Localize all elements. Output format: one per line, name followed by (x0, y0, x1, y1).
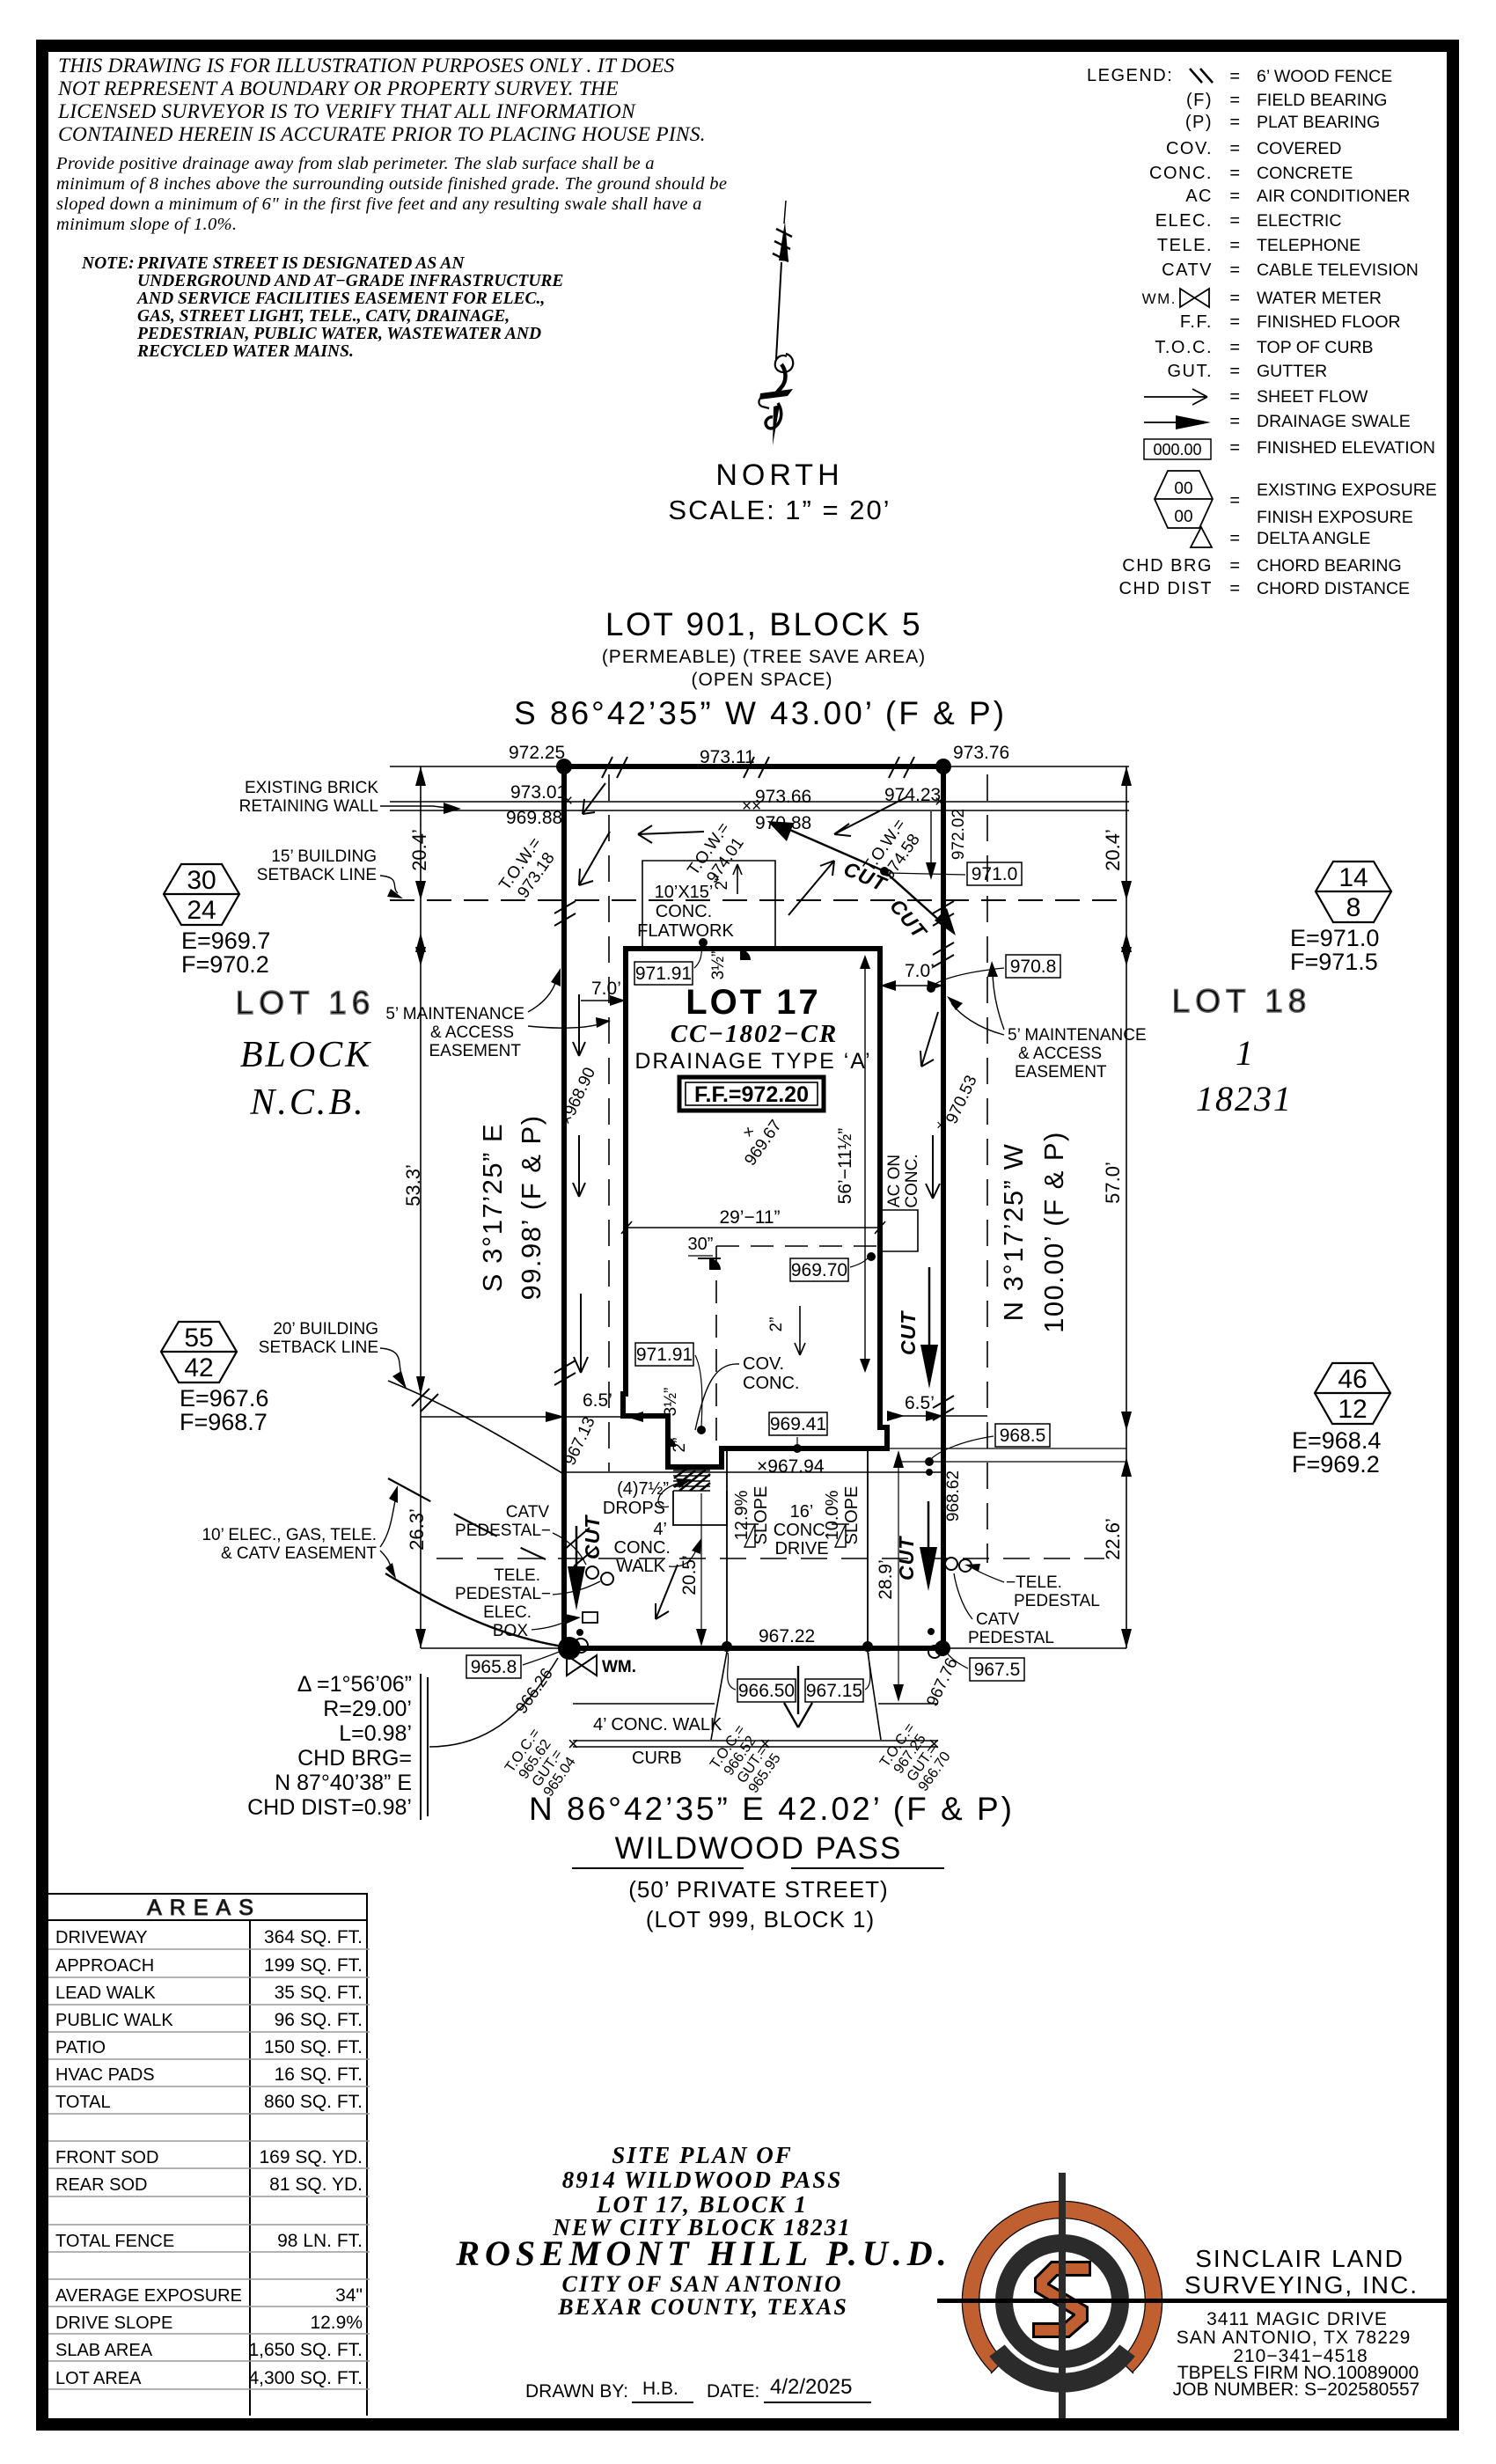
svg-text:=: = (1229, 338, 1241, 357)
svg-text:WM.: WM. (602, 1658, 636, 1676)
svg-text:F.F.: F.F. (1180, 312, 1213, 332)
svg-text:REAR SOD: REAR SOD (55, 2175, 147, 2195)
svg-text:E=968.4: E=968.4 (1292, 1427, 1381, 1454)
svg-text:ELEC.: ELEC. (1155, 211, 1213, 231)
svg-text:=: = (1229, 312, 1241, 332)
svg-text:S 3°17’25” E: S 3°17’25” E (477, 1123, 508, 1292)
svg-text:DRAWN BY:: DRAWN BY: (525, 2381, 628, 2402)
svg-text:HVAC PADS: HVAC PADS (55, 2065, 155, 2085)
svg-text:sloped down a minimum of 6" in: sloped down a minimum of 6" in the first… (56, 194, 702, 214)
svg-text:20.4’: 20.4’ (1102, 829, 1124, 871)
svg-text:TELE.: TELE. (1157, 236, 1213, 255)
svg-text:××: ×× (742, 797, 761, 816)
svg-text:CHD DIST=0.98’: CHD DIST=0.98’ (247, 1795, 412, 1820)
svg-text:20.5’: 20.5’ (679, 1555, 700, 1595)
svg-text:=: = (1229, 412, 1241, 431)
svg-text:969.70: 969.70 (791, 1260, 847, 1280)
svg-text:PUBLIC WALK: PUBLIC WALK (55, 2011, 173, 2030)
svg-text:CONC.: CONC. (656, 902, 712, 921)
svg-text:=: = (1229, 529, 1241, 548)
svg-text:PEDESTAL−: PEDESTAL− (455, 1522, 551, 1540)
svg-text:14: 14 (1338, 863, 1368, 892)
svg-text:12.9%: 12.9% (732, 1490, 752, 1540)
svg-text:NORTH: NORTH (715, 458, 843, 492)
svg-text:T.O.C.: T.O.C. (1155, 338, 1213, 357)
svg-text:973.76: 973.76 (953, 743, 1009, 763)
svg-text:APPROACH: APPROACH (55, 1956, 154, 1976)
svg-text:969.67: 969.67 (741, 1117, 786, 1170)
svg-text:E=969.7: E=969.7 (181, 928, 270, 954)
svg-text:(50’ PRIVATE STREET): (50’ PRIVATE STREET) (628, 1876, 888, 1903)
svg-text:F=968.7: F=968.7 (180, 1409, 268, 1435)
svg-text:968.5: 968.5 (1000, 1426, 1046, 1446)
svg-text:GUTTER: GUTTER (1257, 362, 1327, 381)
svg-text:COV.: COV. (1166, 139, 1213, 158)
svg-text:& CATV EASEMENT: & CATV EASEMENT (221, 1544, 377, 1563)
svg-text:5’ MAINTENANCE: 5’ MAINTENANCE (1008, 1026, 1147, 1045)
svg-text:PRIVATE STREET IS DESIGNATED A: PRIVATE STREET IS DESIGNATED AS AN (136, 254, 465, 273)
svg-text:=: = (1229, 113, 1241, 132)
svg-text:FINISHED ELEVATION: FINISHED ELEVATION (1257, 438, 1435, 458)
svg-text:CONTAINED HEREIN IS ACCURATE P: CONTAINED HEREIN IS ACCURATE PRIOR TO PL… (58, 123, 706, 146)
svg-text:973.66: 973.66 (755, 787, 811, 807)
svg-text:973.01: 973.01 (510, 782, 567, 803)
svg-text:JOB NUMBER: S−202580557: JOB NUMBER: S−202580557 (1173, 2380, 1420, 2400)
svg-text:=: = (1229, 187, 1241, 206)
svg-text:16’: 16’ (790, 1502, 814, 1522)
svg-text:30”: 30” (688, 1235, 714, 1254)
svg-text:SETBACK LINE: SETBACK LINE (257, 866, 377, 884)
svg-text:46: 46 (1338, 1365, 1367, 1394)
svg-text:169 SQ. YD.: 169 SQ. YD. (259, 2147, 363, 2167)
svg-text:16 SQ. FT.: 16 SQ. FT. (275, 2064, 363, 2085)
svg-text:=: = (1229, 387, 1241, 407)
svg-text:5’ MAINTENANCE: 5’ MAINTENANCE (385, 1005, 524, 1023)
svg-text:967.15: 967.15 (806, 1681, 862, 1701)
svg-text:3411 MAGIC DRIVE: 3411 MAGIC DRIVE (1206, 2309, 1388, 2329)
svg-text:971.91: 971.91 (636, 1345, 693, 1365)
svg-text:FRONT SOD: FRONT SOD (55, 2148, 158, 2167)
svg-text:CHORD BEARING: CHORD BEARING (1257, 556, 1402, 576)
svg-text:57.0’: 57.0’ (1102, 1162, 1124, 1204)
svg-text:ELECTRIC: ELECTRIC (1257, 211, 1341, 231)
svg-text:(F): (F) (1186, 91, 1213, 110)
svg-text:965.8: 965.8 (471, 1657, 517, 1677)
svg-text:EXISTING BRICK: EXISTING BRICK (245, 779, 378, 797)
svg-text:PATIO: PATIO (55, 2038, 106, 2057)
svg-text:4/2/2025: 4/2/2025 (770, 2375, 852, 2399)
svg-text:CURB: CURB (632, 1749, 682, 1768)
svg-text:10.0%: 10.0% (823, 1490, 842, 1540)
svg-text:967.22: 967.22 (759, 1626, 815, 1646)
svg-text:=: = (1229, 91, 1241, 110)
svg-text:2”: 2” (671, 1438, 689, 1453)
svg-text:×967.94: ×967.94 (757, 1456, 825, 1477)
svg-text:967.76: 967.76 (923, 1655, 962, 1710)
svg-text:DELTA ANGLE: DELTA ANGLE (1257, 529, 1370, 548)
svg-text:971.0: 971.0 (972, 864, 1018, 884)
svg-text:WATER METER: WATER METER (1257, 289, 1382, 308)
svg-text:=: = (1229, 491, 1241, 510)
svg-text:GAS, STREET LIGHT, TELE., CATV: GAS, STREET LIGHT, TELE., CATV, DRAINAGE… (137, 307, 510, 326)
svg-text:=: = (1229, 579, 1241, 598)
svg-text:N 87°40’38” E: N 87°40’38” E (275, 1771, 412, 1795)
svg-text:EXISTING EXPOSURE: EXISTING EXPOSURE (1257, 480, 1437, 500)
svg-text:6.5’: 6.5’ (905, 1393, 935, 1413)
svg-text:E=967.6: E=967.6 (180, 1385, 268, 1412)
svg-text:971.91: 971.91 (635, 964, 692, 984)
svg-text:CUT: CUT (581, 1514, 604, 1559)
svg-text:FINISH EXPOSURE: FINISH EXPOSURE (1257, 508, 1413, 527)
svg-text:967.5: 967.5 (974, 1660, 1021, 1680)
svg-text:SITE PLAN OF: SITE PLAN OF (612, 2142, 793, 2168)
svg-text:TOTAL: TOTAL (55, 2093, 111, 2112)
svg-text:& ACCESS: & ACCESS (430, 1023, 514, 1042)
svg-text:FIELD BEARING: FIELD BEARING (1257, 91, 1387, 110)
svg-text:=: = (1229, 236, 1241, 255)
svg-text:8914 WILDWOOD PASS: 8914 WILDWOOD PASS (562, 2167, 843, 2193)
svg-text:8: 8 (1346, 893, 1361, 922)
svg-text:SLAB AREA: SLAB AREA (55, 2341, 153, 2360)
svg-text:CATV: CATV (506, 1503, 550, 1522)
svg-text:CUT: CUT (885, 895, 932, 944)
svg-text:WILDWOOD PASS: WILDWOOD PASS (615, 1831, 903, 1866)
svg-text:SINCLAIR LAND: SINCLAIR LAND (1195, 2245, 1404, 2272)
svg-text:18231: 18231 (1196, 1079, 1293, 1118)
svg-text:F.F.=972.20: F.F.=972.20 (694, 1082, 809, 1107)
svg-text:E=971.0: E=971.0 (1290, 925, 1379, 951)
svg-text:4,300 SQ. FT.: 4,300 SQ. FT. (248, 2368, 363, 2388)
svg-text:SCALE: 1” = 20’: SCALE: 1” = 20’ (668, 495, 891, 525)
svg-text:F=971.5: F=971.5 (1290, 949, 1378, 975)
svg-text:=: = (1229, 164, 1241, 183)
svg-text:×: × (935, 793, 944, 811)
svg-text:DRIVE: DRIVE (774, 1539, 828, 1558)
svg-text:S 86°42’35” W 43.00’ (F & P): S 86°42’35” W 43.00’ (F & P) (514, 695, 1007, 731)
svg-text:35 SQ. FT.: 35 SQ. FT. (275, 1983, 363, 2003)
svg-text:TOP OF CURB: TOP OF CURB (1257, 338, 1374, 357)
svg-text:DRAINAGE TYPE ‘A’: DRAINAGE TYPE ‘A’ (634, 1049, 871, 1074)
svg-text:98 LN. FT.: 98 LN. FT. (277, 2231, 363, 2251)
svg-text:CC−1802−CR: CC−1802−CR (671, 1020, 839, 1048)
svg-text:150 SQ. FT.: 150 SQ. FT. (264, 2037, 363, 2057)
svg-text:SHEET FLOW: SHEET FLOW (1257, 387, 1368, 407)
svg-text:4’ CONC. WALK: 4’ CONC. WALK (593, 1715, 722, 1734)
svg-text:4’: 4’ (653, 1520, 667, 1539)
svg-text:COVERED: COVERED (1257, 139, 1341, 158)
svg-text:12: 12 (1338, 1395, 1367, 1424)
svg-text:CHORD DISTANCE: CHORD DISTANCE (1257, 579, 1410, 598)
svg-text:minimum slope of 1.0%.: minimum slope of 1.0%. (56, 215, 237, 234)
svg-text:=: = (1229, 438, 1241, 458)
svg-text:99.98’ (F & P): 99.98’ (F & P) (516, 1114, 546, 1300)
svg-text:966.50: 966.50 (738, 1681, 795, 1701)
svg-text:DROPS: DROPS (603, 1499, 665, 1518)
svg-text:RETAINING WALL: RETAINING WALL (239, 797, 378, 816)
svg-text:24: 24 (187, 896, 216, 925)
svg-text:AIR CONDITIONER: AIR CONDITIONER (1257, 187, 1410, 206)
svg-text:F=969.2: F=969.2 (1292, 1451, 1380, 1478)
svg-text:×: × (936, 1117, 945, 1133)
svg-text:53.3’: 53.3’ (402, 1164, 424, 1206)
svg-text:969.88: 969.88 (506, 808, 562, 828)
svg-text:ELEC.: ELEC. (483, 1603, 532, 1622)
svg-text:TELE.: TELE. (494, 1566, 540, 1585)
svg-text:(OPEN SPACE): (OPEN SPACE) (692, 670, 833, 690)
svg-text:H.B.: H.B. (642, 2379, 678, 2399)
svg-text:96 SQ. FT.: 96 SQ. FT. (275, 2010, 363, 2030)
svg-text:10’ ELEC., GAS, TELE.: 10’ ELEC., GAS, TELE. (202, 1526, 377, 1544)
svg-text:(PERMEABLE) (TREE SAVE AREA): (PERMEABLE) (TREE SAVE AREA) (602, 647, 926, 667)
svg-text:2”: 2” (713, 876, 731, 891)
svg-text:FINISHED FLOOR: FINISHED FLOOR (1257, 312, 1401, 332)
svg-text:56’−11½”: 56’−11½” (835, 1128, 855, 1205)
svg-text:CONC.: CONC. (774, 1521, 830, 1540)
svg-text:2”: 2” (767, 1317, 786, 1332)
svg-text:CONCRETE: CONCRETE (1257, 164, 1353, 183)
svg-text:AND SERVICE FACILITIES EASEMEN: AND SERVICE FACILITIES EASEMENT FOR ELEC… (136, 290, 545, 308)
svg-text:=: = (1229, 67, 1241, 86)
svg-text:30: 30 (187, 866, 216, 895)
svg-text:CATV: CATV (976, 1610, 1020, 1629)
svg-text:GUT.: GUT. (1167, 362, 1213, 381)
svg-text:LOT 17: LOT 17 (686, 983, 821, 1022)
svg-text:CONC.: CONC. (903, 1154, 921, 1207)
svg-text:970.53: 970.53 (942, 1073, 981, 1127)
svg-text:00: 00 (1174, 508, 1192, 526)
svg-text:EASEMENT: EASEMENT (429, 1042, 521, 1060)
svg-text:100.00’ (F & P): 100.00’ (F & P) (1038, 1131, 1069, 1333)
svg-text:RECYCLED WATER MAINS.: RECYCLED WATER MAINS. (136, 342, 354, 361)
svg-text:CUT: CUT (897, 1310, 920, 1355)
svg-text:NOT REPRESENT A BOUNDARY OR PR: NOT REPRESENT A BOUNDARY OR PROPERTY SUR… (57, 77, 619, 100)
svg-text:×: × (563, 792, 573, 810)
svg-text:CABLE TELEVISION: CABLE TELEVISION (1257, 260, 1419, 280)
svg-text:=: = (1229, 289, 1241, 308)
svg-text:55: 55 (184, 1324, 213, 1353)
svg-text:15’ BUILDING: 15’ BUILDING (271, 847, 377, 866)
svg-text:TELEPHONE: TELEPHONE (1257, 236, 1360, 255)
svg-text:CATV: CATV (1162, 260, 1213, 280)
svg-text:28.9’: 28.9’ (876, 1559, 896, 1600)
svg-text:(4)7½”: (4)7½” (617, 1479, 669, 1499)
svg-text:F=970.2: F=970.2 (181, 951, 269, 978)
svg-text:973.11: 973.11 (700, 747, 755, 767)
svg-text:UNDERGROUND AND AT−GRADE INFRA: UNDERGROUND AND AT−GRADE INFRASTRUCTURE (137, 272, 563, 290)
svg-text:968.62: 968.62 (944, 1470, 963, 1522)
svg-text:29’−11”: 29’−11” (719, 1207, 780, 1228)
svg-text:199 SQ. FT.: 199 SQ. FT. (264, 1955, 363, 1976)
svg-text:DRIVEWAY: DRIVEWAY (55, 1928, 147, 1947)
svg-text:PLAT BEARING: PLAT BEARING (1257, 113, 1380, 132)
svg-text:=: = (1229, 260, 1241, 280)
svg-text:AREAS: AREAS (147, 1896, 261, 1920)
svg-text:LEAD WALK: LEAD WALK (55, 1984, 156, 2003)
svg-text:970.8: 970.8 (1010, 957, 1057, 977)
svg-text:972.02: 972.02 (950, 809, 968, 860)
svg-text:81 SQ. YD.: 81 SQ. YD. (269, 2174, 363, 2195)
svg-text:26.3’: 26.3’ (406, 1508, 428, 1551)
svg-text:42: 42 (184, 1353, 213, 1382)
svg-text:WALK: WALK (616, 1557, 666, 1576)
svg-text:BLOCK: BLOCK (240, 1035, 372, 1075)
svg-text:minimum of 8 inches above the: minimum of 8 inches above the surroundin… (56, 174, 727, 194)
svg-text:DATE:: DATE: (707, 2381, 759, 2402)
svg-text:LOT 16: LOT 16 (236, 985, 376, 1021)
svg-text:WM.: WM. (1142, 290, 1177, 307)
svg-text:CITY OF SAN ANTONIO: CITY OF SAN ANTONIO (562, 2271, 843, 2297)
svg-text:CONC.: CONC. (743, 1374, 799, 1393)
svg-text:12.9%: 12.9% (310, 2313, 363, 2333)
svg-text:LOT 901, BLOCK 5: LOT 901, BLOCK 5 (605, 606, 922, 642)
svg-text:N 3°17’25” W: N 3°17’25” W (998, 1143, 1029, 1322)
svg-text:EASEMENT: EASEMENT (1015, 1063, 1107, 1082)
svg-text:DRAINAGE SWALE: DRAINAGE SWALE (1257, 412, 1411, 431)
svg-text:SAN ANTONIO, TX 78229: SAN ANTONIO, TX 78229 (1177, 2328, 1412, 2348)
svg-text:CONC.: CONC. (614, 1538, 671, 1558)
svg-text:=: = (1229, 139, 1241, 158)
svg-text:ROSEMONT HILL P.U.D.: ROSEMONT HILL P.U.D. (455, 2233, 951, 2273)
svg-text:COV.: COV. (743, 1354, 784, 1374)
svg-text:=: = (1229, 211, 1241, 231)
svg-text:TOTAL FENCE: TOTAL FENCE (55, 2232, 174, 2251)
svg-text:00: 00 (1174, 480, 1192, 498)
svg-text:860 SQ. FT.: 860 SQ. FT. (264, 2092, 363, 2112)
svg-text:1,650 SQ. FT.: 1,650 SQ. FT. (248, 2340, 363, 2360)
svg-text:6.5’: 6.5’ (583, 1390, 612, 1411)
svg-text:(LOT 999, BLOCK 1): (LOT 999, BLOCK 1) (646, 1906, 875, 1932)
svg-text:969.41: 969.41 (770, 1414, 826, 1434)
svg-text:N.C.B.: N.C.B. (249, 1082, 365, 1123)
svg-text:972.25: 972.25 (509, 743, 565, 763)
svg-text:AVERAGE EXPOSURE: AVERAGE EXPOSURE (55, 2286, 242, 2306)
svg-text:6’ WOOD FENCE: 6’ WOOD FENCE (1257, 67, 1392, 86)
svg-text:SETBACK LINE: SETBACK LINE (259, 1338, 378, 1357)
svg-text:N 86°42’35” E 42.02’ (F & P): N 86°42’35” E 42.02’ (F & P) (529, 1791, 1015, 1827)
svg-text:& ACCESS: & ACCESS (1018, 1045, 1102, 1063)
svg-text:22.6’: 22.6’ (1102, 1518, 1124, 1560)
svg-text:LICENSED SURVEYOR IS TO VERIFY: LICENSED SURVEYOR IS TO VERIFY THAT ALL … (57, 100, 636, 123)
svg-text:974.23: 974.23 (884, 785, 941, 805)
svg-text:PEDESTAL: PEDESTAL (1014, 1592, 1100, 1610)
svg-text:FLATWORK: FLATWORK (637, 921, 734, 941)
svg-text:CHD DIST: CHD DIST (1119, 579, 1213, 598)
svg-text:7.0’: 7.0’ (905, 961, 935, 981)
svg-text:CONC.: CONC. (1149, 164, 1213, 183)
svg-text:Provide positive drainage away: Provide positive drainage away from slab… (55, 154, 655, 173)
svg-text:R=29.00’: R=29.00’ (323, 1697, 412, 1721)
svg-text:CHD BRG=: CHD BRG= (297, 1746, 412, 1771)
svg-text:LOT 18: LOT 18 (1172, 983, 1312, 1019)
svg-text:AC: AC (1185, 187, 1213, 206)
svg-text:×: × (568, 1733, 579, 1755)
svg-text:NOTE:: NOTE: (81, 254, 135, 273)
svg-text:20’ BUILDING: 20’ BUILDING (273, 1320, 378, 1338)
svg-text:364 SQ. FT.: 364 SQ. FT. (264, 1927, 363, 1947)
svg-text:BOX: BOX (493, 1622, 528, 1640)
svg-text:THIS DRAWING IS FOR ILLUSTRATI: THIS DRAWING IS FOR ILLUSTRATION PURPOSE… (58, 55, 675, 77)
svg-text:−TELE.: −TELE. (1006, 1573, 1062, 1592)
svg-text:000.00: 000.00 (1153, 441, 1201, 458)
svg-text:34": 34" (335, 2285, 363, 2306)
svg-text:BEXAR COUNTY, TEXAS: BEXAR COUNTY, TEXAS (557, 2294, 848, 2320)
svg-text:SURVEYING, INC.: SURVEYING, INC. (1184, 2271, 1419, 2299)
svg-text:20.4’: 20.4’ (408, 829, 430, 871)
svg-text:AC ON: AC ON (885, 1155, 904, 1207)
svg-text:PEDESTAL: PEDESTAL (968, 1629, 1054, 1647)
svg-text:1: 1 (1236, 1033, 1253, 1073)
svg-text:L=0.98’: L=0.98’ (339, 1721, 412, 1746)
svg-text:LEGEND:: LEGEND: (1087, 66, 1173, 85)
svg-text:=: = (1229, 556, 1241, 576)
svg-text:=: = (1229, 362, 1241, 381)
svg-text:3½”: 3½” (709, 951, 728, 980)
svg-text:(P): (P) (1185, 113, 1213, 132)
svg-text:DRIVE SLOPE: DRIVE SLOPE (55, 2314, 172, 2333)
svg-text:CHD BRG: CHD BRG (1122, 556, 1213, 576)
svg-text:PEDESTRIAN, PUBLIC WATER, WAST: PEDESTRIAN, PUBLIC WATER, WASTEWATER AND (136, 325, 541, 343)
svg-text:Δ =1°56’06”: Δ =1°56’06” (297, 1672, 412, 1697)
svg-text:3½”: 3½” (662, 1388, 680, 1417)
svg-text:LOT AREA: LOT AREA (55, 2369, 142, 2388)
svg-text:PEDESTAL−: PEDESTAL− (455, 1585, 551, 1603)
svg-text:10’X15’: 10’X15’ (655, 883, 714, 902)
svg-text:7.0’: 7.0’ (591, 979, 621, 999)
